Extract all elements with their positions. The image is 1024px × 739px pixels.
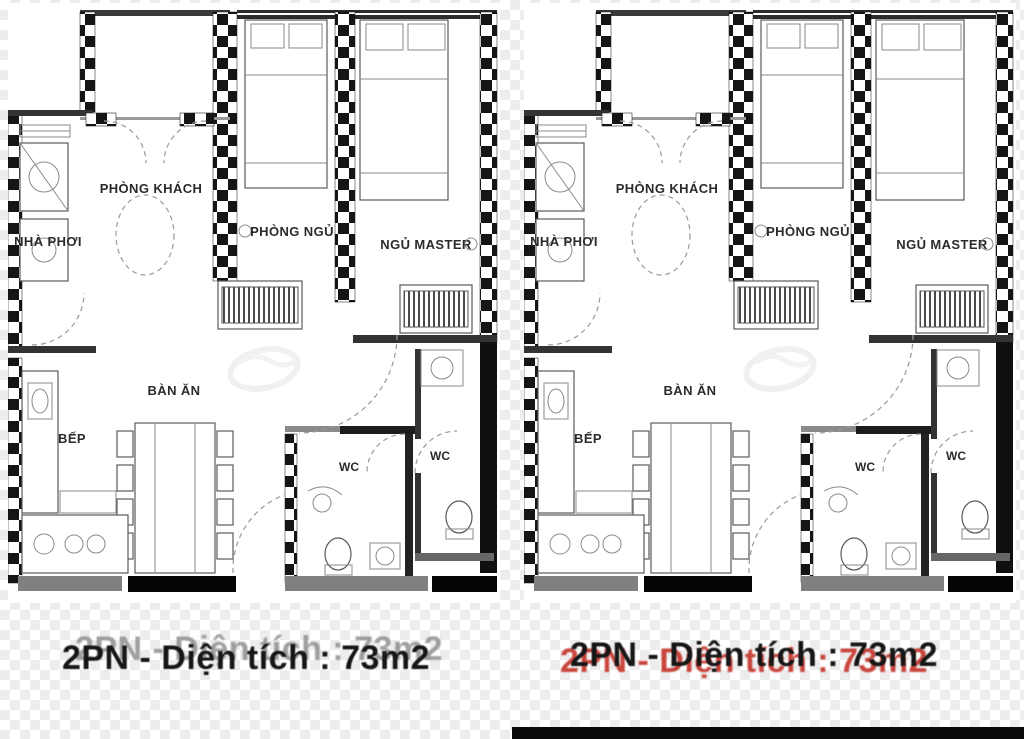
- floor-plan-left: NHÀ PHƠI PHÒNG KHÁCH PHÒNG NGỦ NGỦ MASTE…: [8, 3, 500, 615]
- bedroom-label: PHÒNG NGỦ: [250, 224, 334, 239]
- bottom-black-strip: [512, 727, 1024, 739]
- caption-right: 2PN - Diện tích : 73m2 2PN - Diện tích :…: [514, 627, 994, 687]
- laundry-fixtures: [536, 125, 586, 281]
- laundry-label: NHÀ PHƠI: [530, 234, 598, 249]
- laundry-label: NHÀ PHƠI: [14, 234, 82, 249]
- caption-left-text: 2PN - Diện tích : 73m2: [62, 639, 430, 677]
- bed-icon: [245, 20, 327, 188]
- kitchen-label: BẾP: [574, 431, 602, 446]
- living-label: PHÒNG KHÁCH: [100, 181, 203, 196]
- floor-plan-drawing: NHÀ PHƠI PHÒNG KHÁCH PHÒNG NGỦ NGỦ MASTE…: [524, 3, 1016, 615]
- caption-right-text: 2PN - Diện tích : 73m2: [570, 636, 938, 674]
- laundry-fixtures: [20, 125, 70, 281]
- dining-label: BÀN ĂN: [148, 383, 201, 398]
- wc-center-label: WC: [339, 460, 359, 474]
- wc-master-label: WC: [430, 449, 450, 463]
- dining-table-icon: [633, 423, 749, 573]
- master-bed-icon: [876, 20, 964, 200]
- caption-left: 2PN - Diện tích : 73m2 2PN - Diện tích :…: [0, 630, 492, 690]
- master-bed-icon: [360, 20, 448, 200]
- floor-plan-drawing: NHÀ PHƠI PHÒNG KHÁCH PHÒNG NGỦ NGỦ MASTE…: [8, 3, 500, 615]
- dining-label: BÀN ĂN: [664, 383, 717, 398]
- master-label: NGỦ MASTER: [896, 237, 988, 252]
- living-label: PHÒNG KHÁCH: [616, 181, 719, 196]
- master-label: NGỦ MASTER: [380, 237, 472, 252]
- bedroom-label: PHÒNG NGỦ: [766, 224, 850, 239]
- wc-master-label: WC: [946, 449, 966, 463]
- kitchen-label: BẾP: [58, 431, 86, 446]
- wc-center-label: WC: [855, 460, 875, 474]
- bed-icon: [761, 20, 843, 188]
- floor-plan-image: NHÀ PHƠI PHÒNG KHÁCH PHÒNG NGỦ NGỦ MASTE…: [0, 0, 1024, 739]
- floor-plan-right: NHÀ PHƠI PHÒNG KHÁCH PHÒNG NGỦ NGỦ MASTE…: [524, 3, 1016, 615]
